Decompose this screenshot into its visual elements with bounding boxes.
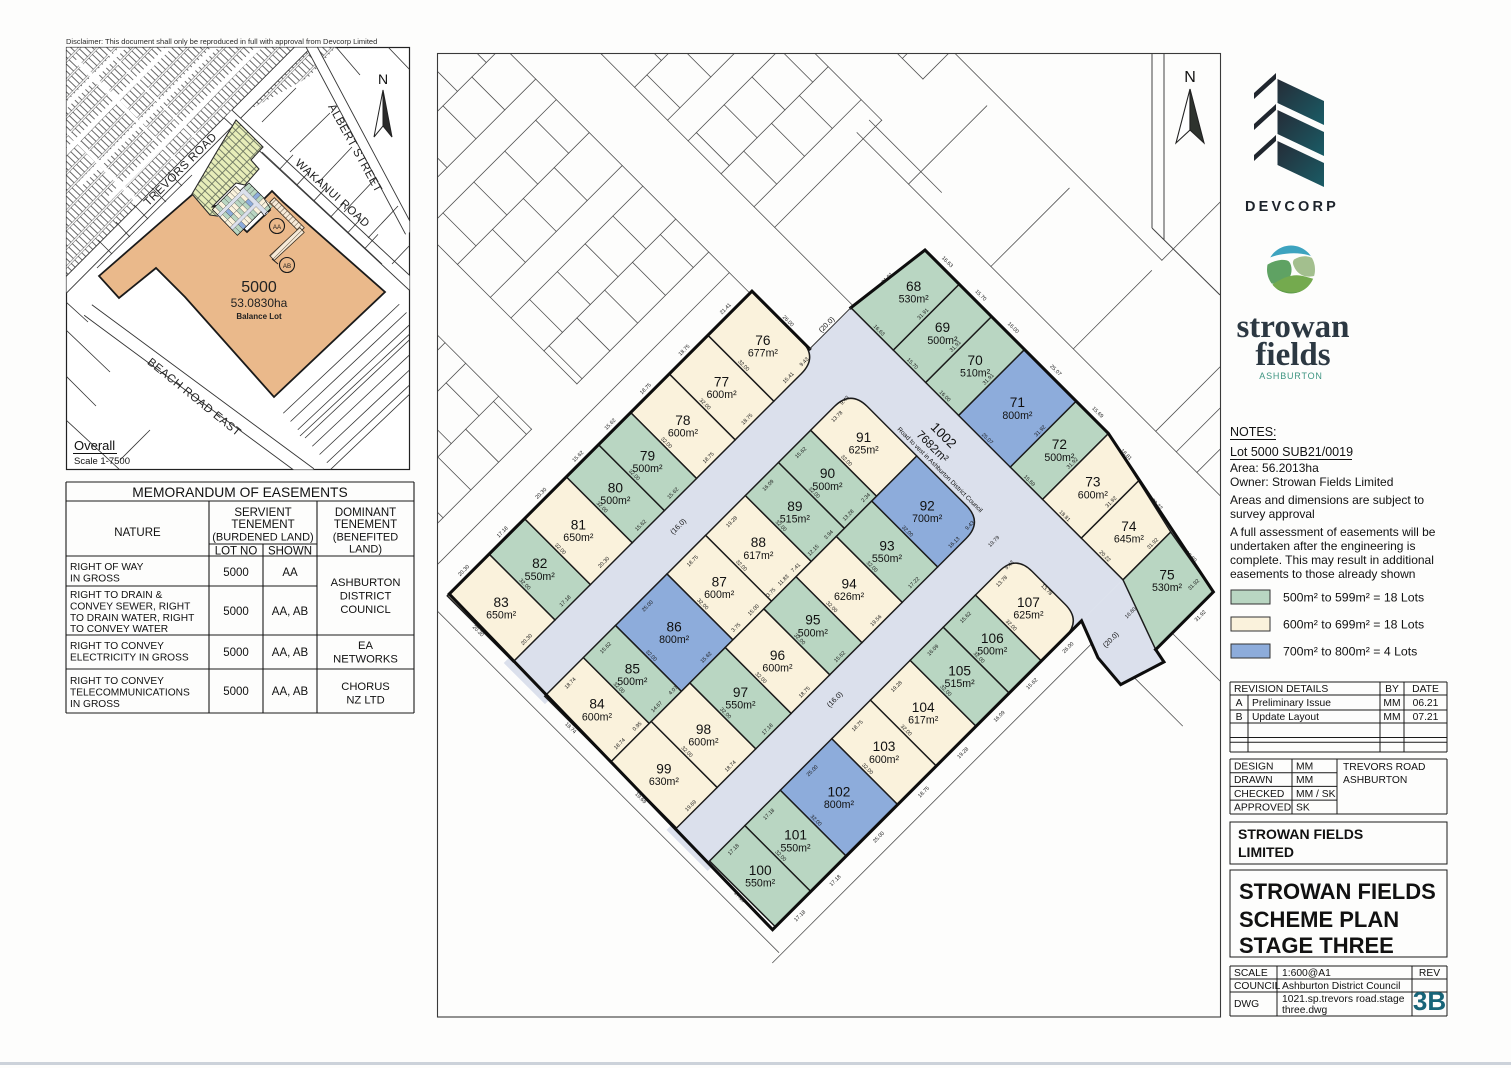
svg-text:677m²: 677m² (748, 348, 779, 360)
svg-text:LIMITED: LIMITED (1238, 844, 1294, 860)
svg-text:Balance Lot: Balance Lot (236, 312, 282, 321)
svg-text:92: 92 (920, 498, 935, 513)
svg-text:99: 99 (656, 762, 671, 777)
svg-text:SERVIENT: SERVIENT (234, 507, 291, 519)
svg-text:617m²: 617m² (908, 715, 939, 727)
svg-text:IN GROSS: IN GROSS (70, 699, 120, 710)
svg-text:600m²: 600m² (582, 711, 613, 723)
svg-text:ASHBURTON: ASHBURTON (1343, 775, 1407, 786)
svg-text:626m²: 626m² (834, 591, 865, 603)
svg-text:800m²: 800m² (1002, 410, 1033, 422)
svg-text:98: 98 (696, 722, 712, 737)
svg-text:800m²: 800m² (659, 634, 690, 646)
svg-text:easements to those already sho: easements to those already shown (1230, 567, 1415, 581)
svg-text:600m²: 600m² (1078, 489, 1109, 501)
svg-text:88: 88 (751, 535, 767, 550)
svg-text:500m²: 500m² (812, 481, 843, 493)
svg-text:103: 103 (873, 739, 896, 754)
svg-text:101: 101 (784, 828, 807, 843)
svg-text:MEMORANDUM OF EASEMENTS: MEMORANDUM OF EASEMENTS (132, 485, 347, 500)
svg-text:600m²: 600m² (668, 428, 699, 440)
svg-text:85: 85 (625, 661, 641, 676)
svg-text:STROWAN FIELDS: STROWAN FIELDS (1239, 879, 1436, 904)
svg-text:600m² to 699m² = 18 Lots: 600m² to 699m² = 18 Lots (1283, 618, 1424, 632)
svg-text:RIGHT TO DRAIN &: RIGHT TO DRAIN & (70, 590, 162, 601)
svg-text:TREVORS ROAD: TREVORS ROAD (1343, 762, 1425, 773)
svg-text:DWG: DWG (1234, 999, 1259, 1010)
svg-text:Owner: Strowan Fields Limited: Owner: Strowan Fields Limited (1230, 475, 1393, 489)
svg-text:550m²: 550m² (745, 878, 776, 890)
svg-text:515m²: 515m² (945, 678, 976, 690)
svg-text:DISTRICT: DISTRICT (340, 591, 392, 603)
svg-text:three.dwg: three.dwg (1282, 1005, 1327, 1016)
svg-text:70: 70 (967, 353, 983, 368)
svg-text:97: 97 (733, 685, 748, 700)
svg-text:73: 73 (1085, 475, 1101, 490)
svg-text:86: 86 (667, 619, 683, 634)
svg-text:78: 78 (675, 413, 691, 428)
svg-text:ASHBURTON: ASHBURTON (1259, 371, 1322, 381)
svg-text:Overall: Overall (74, 438, 115, 453)
svg-text:Disclaimer: This document shal: Disclaimer: This document shall only be … (66, 37, 377, 46)
svg-text:83: 83 (494, 595, 510, 610)
svg-text:RIGHT TO CONVEY: RIGHT TO CONVEY (70, 676, 164, 687)
svg-text:90: 90 (820, 466, 836, 481)
svg-text:N: N (1184, 69, 1196, 86)
svg-text:72: 72 (1052, 437, 1067, 452)
svg-text:87: 87 (712, 574, 727, 589)
svg-text:Areas and dimensions are subje: Areas and dimensions are subject to (1230, 493, 1424, 507)
svg-text:81: 81 (571, 518, 586, 533)
svg-text:530m²: 530m² (1152, 582, 1183, 594)
svg-text:complete. This may result in a: complete. This may result in additional (1230, 553, 1434, 567)
svg-text:645m²: 645m² (1114, 534, 1145, 546)
svg-text:68: 68 (906, 279, 922, 294)
svg-text:93: 93 (879, 539, 895, 554)
svg-text:530m²: 530m² (899, 294, 930, 306)
svg-text:TO CONVEY WATER: TO CONVEY WATER (70, 624, 168, 635)
svg-text:84: 84 (589, 697, 605, 712)
svg-text:EA: EA (358, 640, 373, 652)
svg-text:600m²: 600m² (704, 589, 735, 601)
svg-text:TELECOMMUNICATIONS: TELECOMMUNICATIONS (70, 687, 190, 698)
svg-text:800m²: 800m² (824, 799, 855, 811)
svg-text:MM: MM (1383, 698, 1400, 709)
svg-text:Ashburton District Council: Ashburton District Council (1282, 981, 1400, 992)
svg-text:LOT NO: LOT NO (215, 546, 258, 558)
svg-text:RIGHT OF WAY: RIGHT OF WAY (70, 562, 144, 573)
svg-text:1:600@A1: 1:600@A1 (1282, 968, 1331, 979)
svg-text:102: 102 (828, 784, 851, 799)
svg-text:undertaken after the engineeri: undertaken after the engineering is (1230, 539, 1415, 553)
svg-text:82: 82 (532, 556, 547, 571)
svg-text:SCALE: SCALE (1234, 968, 1268, 979)
svg-text:500m²: 500m² (977, 646, 1008, 658)
svg-text:Lot 5000 SUB21/0019: Lot 5000 SUB21/0019 (1230, 445, 1353, 459)
svg-text:104: 104 (912, 700, 935, 715)
svg-text:700m²: 700m² (912, 513, 943, 525)
svg-text:RIGHT TO CONVEY: RIGHT TO CONVEY (70, 641, 164, 652)
svg-text:105: 105 (948, 664, 971, 679)
svg-text:LAND): LAND) (349, 544, 382, 556)
svg-text:89: 89 (787, 499, 802, 514)
svg-text:500m²: 500m² (600, 495, 631, 507)
svg-text:550m²: 550m² (780, 842, 811, 854)
svg-text:MM / SK: MM / SK (1296, 789, 1336, 800)
svg-text:CONVEY SEWER, RIGHT: CONVEY SEWER, RIGHT (70, 601, 190, 612)
svg-text:SK: SK (1296, 803, 1310, 814)
svg-text:DEVCORP: DEVCORP (1245, 199, 1339, 215)
svg-text:Scale 1-7500: Scale 1-7500 (74, 456, 130, 467)
svg-text:NOTES:: NOTES: (1230, 425, 1277, 439)
svg-text:07.21: 07.21 (1413, 712, 1439, 723)
svg-text:5000: 5000 (223, 567, 249, 579)
svg-text:Update Layout: Update Layout (1252, 712, 1319, 723)
svg-text:STROWAN FIELDS: STROWAN FIELDS (1238, 826, 1363, 842)
svg-text:550m²: 550m² (525, 571, 556, 583)
svg-text:A full assessment of easements: A full assessment of easements will be (1230, 525, 1436, 539)
svg-text:600m²: 600m² (869, 754, 900, 766)
svg-text:NZ LTD: NZ LTD (346, 695, 384, 707)
svg-text:80: 80 (608, 481, 624, 496)
svg-text:CHECKED: CHECKED (1234, 789, 1284, 800)
svg-text:APPROVED: APPROVED (1234, 803, 1291, 814)
svg-text:69: 69 (935, 320, 950, 335)
svg-text:600m²: 600m² (762, 663, 793, 675)
svg-text:106: 106 (981, 631, 1004, 646)
svg-text:625m²: 625m² (849, 445, 880, 457)
svg-text:TENEMENT: TENEMENT (231, 519, 294, 531)
svg-text:BY: BY (1385, 684, 1399, 695)
svg-text:survey approval: survey approval (1230, 507, 1315, 521)
svg-text:71: 71 (1010, 395, 1025, 410)
svg-text:600m²: 600m² (706, 389, 737, 401)
svg-text:MM: MM (1383, 712, 1400, 723)
svg-text:MM: MM (1296, 775, 1313, 786)
svg-text:N: N (378, 71, 388, 87)
svg-text:79: 79 (640, 448, 655, 463)
svg-text:53.0830ha: 53.0830ha (231, 296, 288, 310)
svg-text:IN GROSS: IN GROSS (70, 573, 120, 584)
svg-text:COUNICL: COUNICL (340, 604, 390, 616)
svg-text:MM: MM (1296, 762, 1313, 773)
svg-text:625m²: 625m² (1013, 609, 1044, 621)
svg-text:650m²: 650m² (563, 532, 594, 544)
svg-text:500m²: 500m² (617, 676, 648, 688)
svg-text:1021.sp.trevors road.stage: 1021.sp.trevors road.stage (1282, 994, 1405, 1005)
svg-text:74: 74 (1121, 519, 1137, 534)
svg-text:94: 94 (841, 576, 857, 591)
svg-text:550m²: 550m² (725, 700, 756, 712)
svg-text:5000: 5000 (241, 279, 277, 296)
svg-text:AA, AB: AA, AB (272, 606, 309, 618)
svg-text:DATE: DATE (1412, 684, 1439, 695)
svg-text:91: 91 (856, 430, 871, 445)
svg-text:Area: 56.2013ha: Area: 56.2013ha (1230, 461, 1319, 475)
svg-text:AA, AB: AA, AB (272, 647, 309, 659)
svg-text:NETWORKS: NETWORKS (333, 654, 398, 666)
svg-text:5000: 5000 (223, 686, 249, 698)
svg-text:AB: AB (283, 263, 291, 270)
svg-text:600m²: 600m² (688, 737, 719, 749)
svg-text:AA: AA (282, 567, 298, 579)
svg-text:3B: 3B (1413, 986, 1446, 1016)
svg-text:06.21: 06.21 (1413, 698, 1439, 709)
svg-text:650m²: 650m² (486, 609, 517, 621)
svg-text:DOMINANT: DOMINANT (335, 507, 396, 519)
svg-text:500m² to 599m² = 18 Lots: 500m² to 599m² = 18 Lots (1283, 591, 1424, 605)
svg-text:(BURDENED LAND): (BURDENED LAND) (212, 532, 313, 544)
svg-text:REVISION DETAILS: REVISION DETAILS (1234, 684, 1328, 695)
svg-text:76: 76 (755, 333, 771, 348)
svg-text:617m²: 617m² (743, 550, 774, 562)
svg-text:TENEMENT: TENEMENT (334, 519, 397, 531)
svg-text:75: 75 (1159, 567, 1175, 582)
svg-text:77: 77 (714, 374, 729, 389)
svg-text:5000: 5000 (223, 606, 249, 618)
svg-text:AA, AB: AA, AB (272, 686, 309, 698)
svg-text:DRAWN: DRAWN (1234, 775, 1273, 786)
svg-text:515m²: 515m² (780, 513, 811, 525)
svg-text:700m² to 800m² = 4 Lots: 700m² to 800m² = 4 Lots (1283, 645, 1417, 659)
svg-text:NATURE: NATURE (114, 527, 161, 539)
svg-text:DESIGN: DESIGN (1234, 762, 1273, 773)
svg-text:STAGE THREE: STAGE THREE (1239, 933, 1394, 958)
svg-text:SHOWN: SHOWN (268, 546, 312, 558)
svg-text:SCHEME PLAN: SCHEME PLAN (1239, 907, 1399, 932)
svg-text:A: A (1236, 698, 1243, 709)
svg-text:REV: REV (1419, 968, 1440, 979)
svg-text:96: 96 (770, 648, 786, 663)
svg-text:Preliminary Issue: Preliminary Issue (1252, 698, 1331, 709)
svg-text:95: 95 (805, 613, 821, 628)
svg-text:COUNCIL: COUNCIL (1234, 981, 1281, 992)
svg-text:(BENEFITED: (BENEFITED (333, 532, 398, 544)
svg-text:AA: AA (273, 224, 282, 231)
svg-text:TO DRAIN WATER, RIGHT: TO DRAIN WATER, RIGHT (70, 613, 194, 624)
svg-text:ELECTRICITY IN GROSS: ELECTRICITY IN GROSS (70, 652, 189, 663)
svg-text:630m²: 630m² (649, 776, 680, 788)
svg-text:100: 100 (749, 863, 772, 878)
svg-text:ASHBURTON: ASHBURTON (331, 577, 401, 589)
svg-text:550m²: 550m² (872, 553, 903, 565)
svg-text:CHORUS: CHORUS (341, 681, 389, 693)
svg-text:B: B (1236, 712, 1243, 723)
svg-text:5000: 5000 (223, 647, 249, 659)
svg-text:107: 107 (1017, 595, 1040, 610)
svg-text:fields: fields (1255, 337, 1330, 373)
